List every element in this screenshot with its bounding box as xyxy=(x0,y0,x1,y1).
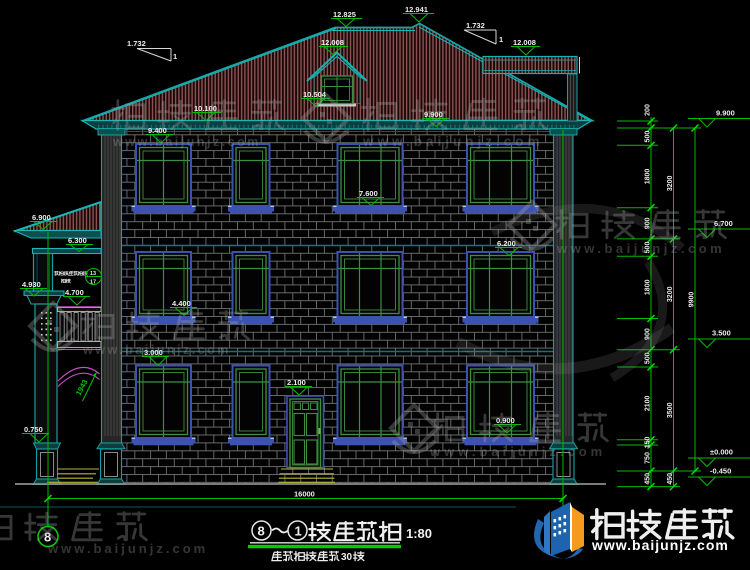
svg-text:www.baijunjz.com: www.baijunjz.com xyxy=(429,444,606,459)
svg-text:6.700: 6.700 xyxy=(714,219,733,228)
svg-text:www.baijunjz.com: www.baijunjz.com xyxy=(362,134,544,149)
svg-text:2100: 2100 xyxy=(645,396,652,412)
svg-text:8: 8 xyxy=(258,524,265,539)
svg-text:500: 500 xyxy=(645,131,652,143)
svg-text:12.941: 12.941 xyxy=(405,5,428,14)
svg-text:7.600: 7.600 xyxy=(359,189,378,198)
svg-text:12.008: 12.008 xyxy=(513,38,536,47)
svg-text:4.700: 4.700 xyxy=(65,288,84,297)
svg-text:16000: 16000 xyxy=(294,490,315,499)
svg-text:1800: 1800 xyxy=(645,169,652,185)
svg-text:1:80: 1:80 xyxy=(406,526,432,541)
svg-text:3.500: 3.500 xyxy=(712,329,731,338)
svg-text:4.400: 4.400 xyxy=(172,299,191,308)
svg-text:200: 200 xyxy=(645,104,652,116)
svg-text:12.825: 12.825 xyxy=(333,10,356,19)
svg-text:1: 1 xyxy=(295,524,302,539)
svg-text:13: 13 xyxy=(90,271,96,277)
svg-text:3500: 3500 xyxy=(667,402,674,418)
svg-text:2.100: 2.100 xyxy=(287,378,306,387)
svg-text:9.900: 9.900 xyxy=(716,109,735,118)
svg-text:6.900: 6.900 xyxy=(32,213,51,222)
svg-text:17: 17 xyxy=(90,280,96,286)
svg-text:www.baijunjz.com: www.baijunjz.com xyxy=(112,135,261,149)
svg-text:3200: 3200 xyxy=(667,286,674,302)
svg-text:4.930: 4.930 xyxy=(22,280,41,289)
svg-text:12.008: 12.008 xyxy=(321,38,344,47)
svg-text:450: 450 xyxy=(667,473,674,485)
svg-text:9900: 9900 xyxy=(689,292,696,308)
svg-text:1800: 1800 xyxy=(645,279,652,295)
svg-text:450: 450 xyxy=(645,473,652,485)
svg-text:www.baijunjz.com: www.baijunjz.com xyxy=(591,537,729,553)
svg-text:150: 150 xyxy=(645,436,652,448)
svg-text:0.750: 0.750 xyxy=(24,425,43,434)
svg-text:3200: 3200 xyxy=(667,176,674,192)
svg-text:1: 1 xyxy=(499,35,503,44)
svg-text:www.baijunjz.com: www.baijunjz.com xyxy=(47,541,208,556)
svg-text:1: 1 xyxy=(173,52,177,61)
svg-text:±0.000: ±0.000 xyxy=(710,448,733,457)
svg-text:-0.450: -0.450 xyxy=(710,467,731,476)
svg-text:6.300: 6.300 xyxy=(68,236,87,245)
svg-text:www.baijunjz.com: www.baijunjz.com xyxy=(556,241,725,256)
svg-text:www.baijunjz.com: www.baijunjz.com xyxy=(82,343,231,357)
svg-text:1.732: 1.732 xyxy=(127,39,146,48)
svg-text:30: 30 xyxy=(341,552,353,563)
svg-text:1.732: 1.732 xyxy=(466,21,485,30)
svg-text:750: 750 xyxy=(645,452,652,464)
